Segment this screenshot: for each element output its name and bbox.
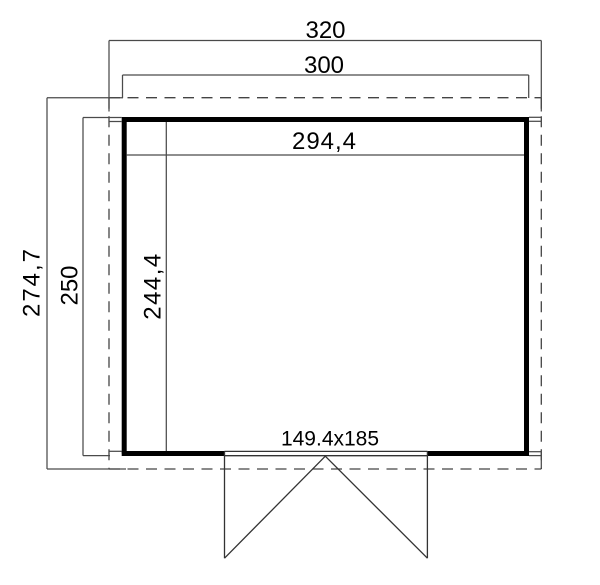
svg-text:300: 300 — [304, 52, 344, 79]
svg-text:250: 250 — [57, 265, 84, 305]
svg-text:274,7: 274,7 — [19, 247, 46, 317]
svg-text:294,4: 294,4 — [292, 128, 357, 155]
svg-text:320: 320 — [305, 17, 345, 44]
svg-text:149.4x185: 149.4x185 — [281, 428, 379, 451]
svg-text:244,4: 244,4 — [140, 252, 167, 320]
